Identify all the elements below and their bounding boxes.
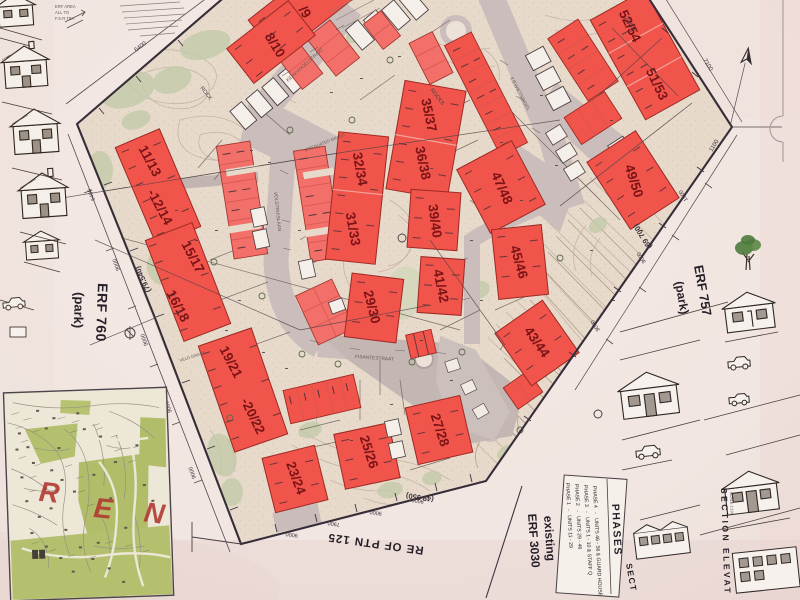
svg-text:R: R — [38, 476, 62, 509]
svg-text:SCALE 1:100: SCALE 1:100 — [729, 492, 734, 515]
svg-text:ALL TO: ALL TO — [55, 10, 70, 15]
svg-text:ERF AREA: ERF AREA — [55, 4, 76, 9]
svg-text:ERF 760: ERF 760 — [93, 283, 111, 342]
svg-text:F.S.R TBA: F.S.R TBA — [55, 16, 75, 21]
svg-text:(park): (park) — [71, 292, 87, 329]
